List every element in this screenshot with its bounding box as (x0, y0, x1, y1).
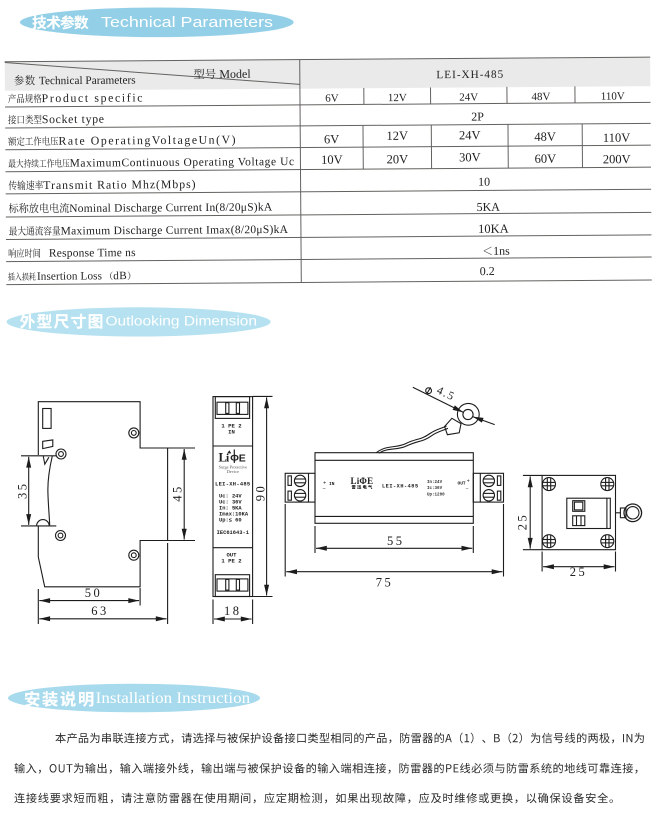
svg-text:60V: 60V (535, 152, 557, 166)
svg-text:48V: 48V (534, 130, 556, 144)
svg-text:Maximum Discharge Current Imax: Maximum Discharge Current Imax(8/20μS)kA (61, 224, 289, 238)
svg-text:Transmit Ratio Mhz(Mbps): Transmit Ratio Mhz(Mbps) (43, 177, 196, 192)
svg-text:12V: 12V (388, 92, 407, 104)
svg-text:dB: dB (113, 270, 127, 282)
svg-text:Technical Parameters: Technical Parameters (101, 15, 273, 31)
svg-text:25: 25 (516, 513, 530, 531)
svg-text:−: − (323, 486, 326, 493)
svg-text:Socket type: Socket type (42, 112, 105, 126)
svg-text:200V: 200V (603, 152, 631, 166)
svg-text:24V: 24V (459, 128, 481, 142)
svg-text:Up:1200: Up:1200 (427, 493, 445, 497)
svg-text:10: 10 (478, 175, 490, 189)
svg-text:63: 63 (91, 604, 109, 618)
svg-text:IN: IN (228, 429, 235, 436)
svg-text:LiΦE: LiΦE (351, 476, 374, 486)
svg-text:45: 45 (170, 484, 184, 502)
svg-text:50: 50 (85, 586, 103, 600)
svg-text:90: 90 (253, 484, 267, 502)
svg-text:2P: 2P (471, 109, 484, 123)
svg-text:Insertion Loss: Insertion Loss (37, 270, 102, 282)
svg-text:18: 18 (224, 604, 242, 618)
svg-text:Technical Parameters: Technical Parameters (39, 75, 136, 88)
svg-text:LEI-XH-485: LEI-XH-485 (382, 483, 419, 489)
svg-text:Rate OperatingVoltageUn(V): Rate OperatingVoltageUn(V) (58, 132, 237, 147)
svg-text:10KA: 10KA (478, 222, 509, 236)
svg-text:IN: IN (329, 481, 335, 487)
svg-text:25: 25 (570, 565, 588, 579)
svg-text:Outlooking Dimension: Outlooking Dimension (106, 313, 258, 329)
svg-text:Response Time ns: Response Time ns (49, 247, 136, 260)
svg-text:+: + (467, 479, 470, 485)
svg-text:20V: 20V (387, 152, 409, 166)
svg-text:110V: 110V (603, 131, 630, 145)
svg-text:24V: 24V (459, 92, 478, 104)
svg-text:Device: Device (227, 469, 239, 474)
svg-text:LEI-XH-485: LEI-XH-485 (215, 481, 250, 487)
svg-text:Up:≤ 60: Up:≤ 60 (219, 517, 242, 523)
svg-text:75: 75 (376, 575, 394, 589)
svg-text:MaximumContinuous Operating Vo: MaximumContinuous Operating Voltage Uc (70, 156, 295, 170)
svg-text:110V: 110V (601, 90, 625, 102)
svg-text:1ns: 1ns (493, 244, 510, 258)
svg-text:LEI-XH-485: LEI-XH-485 (436, 69, 504, 81)
svg-text:Installation Instruction: Installation Instruction (96, 690, 250, 707)
svg-text:0.2: 0.2 (480, 264, 495, 278)
svg-text:−: − (466, 486, 469, 492)
svg-text:Ic:36V: Ic:36V (427, 487, 443, 491)
svg-text:6V: 6V (325, 93, 339, 105)
svg-text:10V: 10V (321, 153, 343, 167)
svg-text:35: 35 (15, 481, 29, 499)
svg-text:12V: 12V (386, 129, 408, 143)
svg-text:6V: 6V (324, 132, 339, 146)
svg-text:5KA: 5KA (477, 200, 501, 214)
svg-text:1 PE 2: 1 PE 2 (221, 558, 242, 565)
svg-text:55: 55 (387, 534, 405, 548)
svg-text:IEC61643-1: IEC61643-1 (217, 530, 249, 536)
svg-text:E: E (239, 452, 246, 464)
svg-text:Product specific: Product specific (42, 90, 145, 105)
svg-text:In:24V: In:24V (427, 481, 443, 485)
svg-text:Model: Model (219, 67, 251, 81)
svg-text:Nominal Discharge Current In(8: Nominal Discharge Current In(8/20μS)kA (69, 201, 273, 214)
svg-text:48V: 48V (531, 91, 550, 103)
svg-text:30V: 30V (459, 150, 481, 164)
